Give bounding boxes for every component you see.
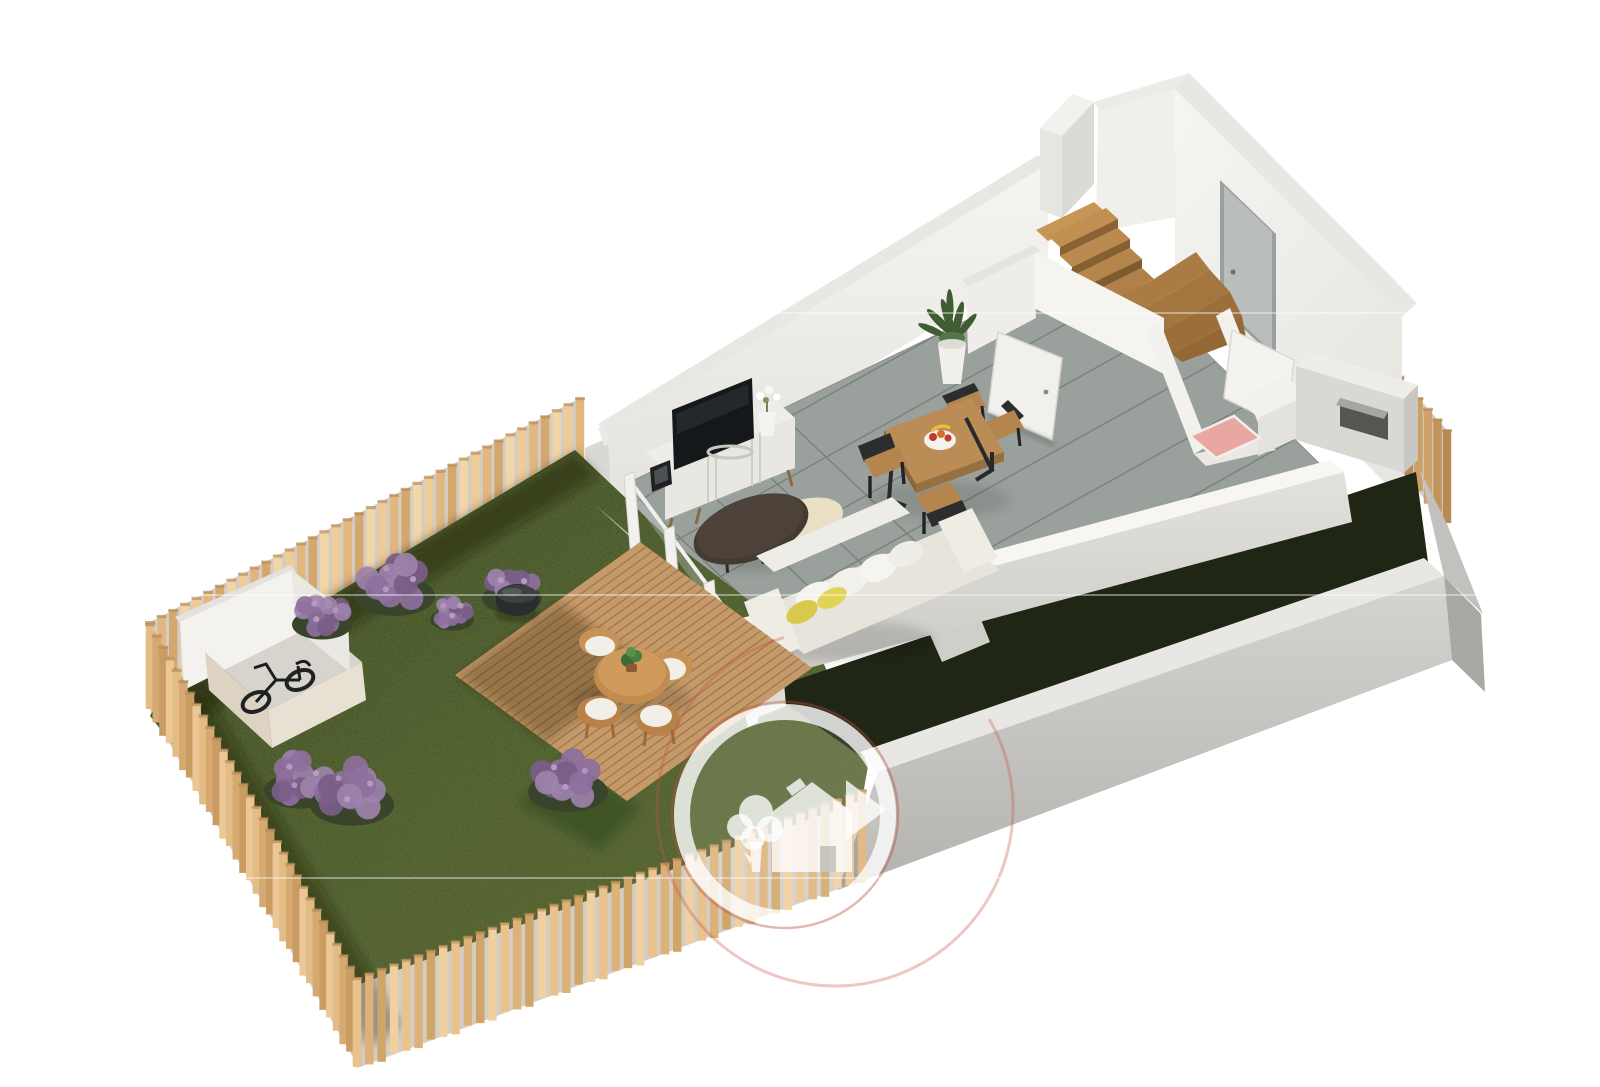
floorplan-svg bbox=[0, 0, 1600, 1087]
lavender-bush bbox=[292, 594, 352, 639]
floorplan-render bbox=[0, 0, 1600, 1087]
door-handle bbox=[1230, 269, 1235, 274]
fire-bowl-planter bbox=[495, 584, 539, 622]
